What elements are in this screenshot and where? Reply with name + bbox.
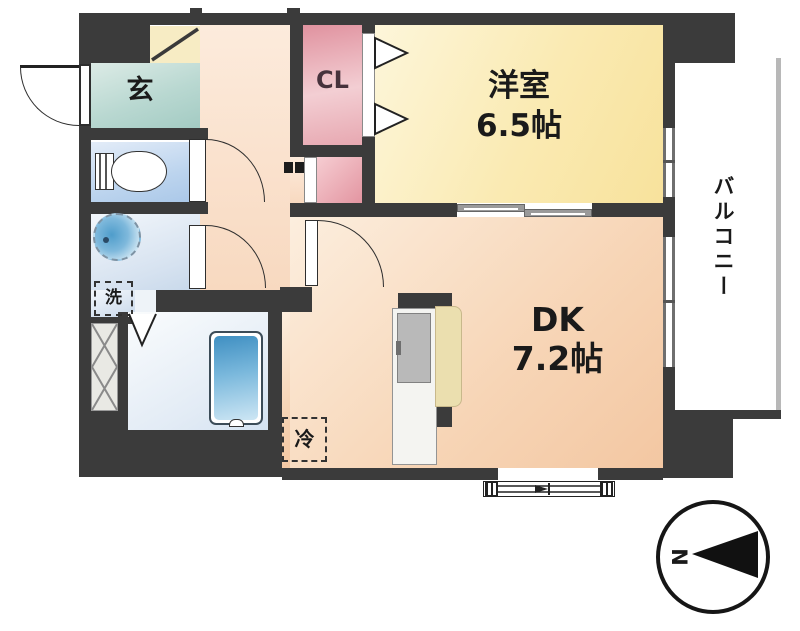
wall — [79, 430, 282, 477]
bathtub-drain — [229, 419, 244, 427]
refrigerator-label: 冷 — [284, 429, 325, 450]
door-track-mark — [295, 162, 304, 173]
compass: N — [656, 500, 770, 614]
wall-tick — [287, 8, 300, 13]
dk-door-leaf — [305, 220, 318, 286]
western-room-size: 6.5帖 — [375, 110, 663, 143]
washroom-door-leaf — [189, 225, 206, 289]
wall — [598, 468, 663, 480]
door-track-mark — [284, 162, 293, 173]
storage-door-leaf — [304, 157, 317, 203]
wall — [362, 137, 375, 205]
wall-tick — [190, 8, 202, 13]
western-room-name: 洋室 — [375, 70, 663, 103]
dk-south-window — [483, 481, 615, 497]
window-frame-cap — [600, 482, 613, 496]
storage-floor — [317, 157, 362, 203]
washbasin — [93, 213, 141, 261]
compass-north-label: N — [668, 544, 690, 570]
wall — [290, 13, 303, 157]
refrigerator-space: 冷 — [282, 417, 327, 462]
wall — [592, 203, 663, 217]
dk-name: DK — [440, 303, 675, 338]
balcony-label: バルコニー — [712, 150, 734, 325]
balcony-bottom-wall — [733, 410, 781, 419]
laundry-label: 洗 — [96, 290, 131, 308]
window-frame-cap — [485, 482, 498, 496]
dk-size: 7.2帖 — [440, 342, 675, 377]
wall — [290, 203, 457, 217]
closet-folding-door — [362, 33, 375, 137]
kitchen-partition-wall — [437, 405, 452, 427]
wall — [280, 287, 312, 312]
wall — [282, 468, 498, 480]
entrance-door-arc — [20, 67, 79, 126]
window-divider — [663, 160, 675, 163]
kitchen-sink — [397, 313, 431, 383]
closet-label: CL — [303, 68, 362, 93]
entrance-door-frame — [79, 64, 91, 126]
compass-needle-icon — [692, 531, 758, 578]
wall — [91, 411, 118, 430]
wall — [290, 145, 362, 157]
floor-plan: 洗 冷 玄 CL 洋室 6.5帖 DK 7.2帖 バルコニー N — [0, 0, 800, 631]
wall — [663, 410, 733, 478]
bathroom-doorway — [135, 290, 156, 312]
sliding-door-panel — [524, 209, 592, 217]
wall — [118, 312, 128, 430]
wall — [91, 202, 208, 214]
kitchen-sink-handle — [396, 341, 401, 355]
wall — [362, 13, 375, 33]
genkan-label: 玄 — [110, 77, 170, 105]
shoe-cabinet-area — [150, 26, 200, 63]
lattice-window — [91, 323, 118, 411]
wall — [79, 13, 675, 25]
bathtub-water — [214, 336, 258, 420]
washing-machine-space: 洗 — [94, 281, 133, 316]
balcony-outer-edge — [776, 58, 781, 415]
toilet-bowl — [111, 151, 167, 192]
sliding-door-panel — [457, 204, 525, 212]
wall — [156, 290, 282, 312]
toilet-door-leaf — [189, 139, 206, 202]
